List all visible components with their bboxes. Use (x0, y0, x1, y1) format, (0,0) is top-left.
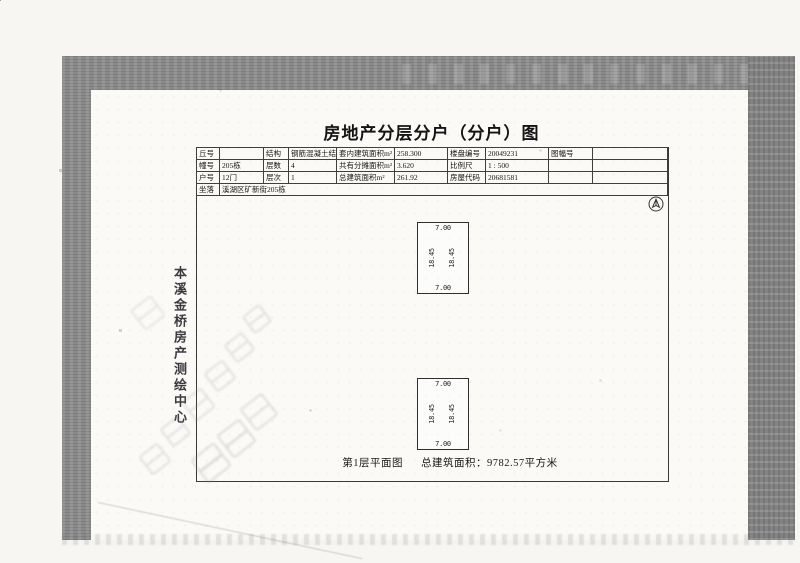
field-label: 共有分摊面积m² (337, 160, 395, 172)
plan-caption: 第1层平面图总建筑面积：9782.57平方米 (200, 455, 700, 470)
field-label: 总建筑面积m² (337, 172, 395, 184)
dimension-label: 7.00 (418, 224, 468, 232)
field-value: 溪湖区矿新街205栋 (220, 184, 668, 196)
scan-edge-streak (62, 534, 795, 545)
scan-specks (0, 0, 1, 1)
dimension-label: 7.00 (418, 284, 468, 292)
field-value: 4 (289, 160, 337, 172)
scan-shadow-right (748, 56, 795, 540)
field-value (593, 160, 668, 172)
dimension-label: 18.45 (448, 248, 456, 268)
field-label: 坐落 (197, 184, 220, 196)
field-value: 20681581 (486, 172, 549, 184)
plan-unit-outline: 7.00 7.00 18.45 18.45 (417, 222, 469, 294)
total-area-label: 总建筑面积：9782.57平方米 (421, 455, 558, 470)
field-label: 层次 (264, 172, 289, 184)
field-label: 比例尺 (448, 160, 486, 172)
dimension-label: 18.45 (428, 404, 436, 424)
scanned-floor-plan-document: 房地产分层分户（分户）图 丘号 结构 钢筋混凝土结构 套内建筑面积m² 258.… (0, 0, 800, 563)
dimension-label: 18.45 (448, 404, 456, 424)
plan-unit-outline: 7.00 7.00 18.45 18.45 (417, 378, 469, 450)
dimension-label: 7.00 (418, 380, 468, 388)
field-label: 结构 (264, 148, 289, 160)
field-label (549, 172, 593, 184)
field-label: 层数 (264, 160, 289, 172)
field-value: 12门 (220, 172, 264, 184)
field-value: 1 (289, 172, 337, 184)
north-arrow-icon (648, 196, 664, 212)
field-value (593, 148, 668, 160)
copy-watermark-noise (402, 64, 782, 84)
field-label: 套内建筑面积m² (337, 148, 395, 160)
field-label (549, 160, 593, 172)
scan-shadow-left (62, 56, 91, 540)
field-value (220, 148, 264, 160)
property-info-table: 丘号 结构 钢筋混凝土结构 套内建筑面积m² 258.300 楼盘编号 2004… (196, 147, 668, 196)
field-label: 户号 (197, 172, 220, 184)
field-value: 1 : 500 (486, 160, 549, 172)
field-value (593, 172, 668, 184)
table-row-location: 坐落 溪湖区矿新街205栋 (197, 184, 668, 196)
field-label: 楼盘编号 (448, 148, 486, 160)
floor-label: 第1层平面图 (342, 455, 403, 470)
field-label: 房屋代码 (448, 172, 486, 184)
table-row: 幢号 205栋 层数 4 共有分摊面积m² 3.620 比例尺 1 : 500 (197, 160, 668, 172)
field-value: 205栋 (220, 160, 264, 172)
field-value: 20049231 (486, 148, 549, 160)
field-label: 图幅号 (549, 148, 593, 160)
field-value: 258.300 (395, 148, 448, 160)
dimension-label: 7.00 (418, 440, 468, 448)
dimension-label: 18.45 (428, 248, 436, 268)
field-value: 261.92 (395, 172, 448, 184)
field-value: 3.620 (395, 160, 448, 172)
table-row: 丘号 结构 钢筋混凝土结构 套内建筑面积m² 258.300 楼盘编号 2004… (197, 148, 668, 160)
scan-shadow-top (62, 56, 795, 90)
field-label: 幢号 (197, 160, 220, 172)
table-row: 户号 12门 层次 1 总建筑面积m² 261.92 房屋代码 20681581 (197, 172, 668, 184)
field-label: 丘号 (197, 148, 220, 160)
page-title: 房地产分层分户（分户）图 (196, 119, 667, 144)
field-value: 钢筋混凝土结构 (289, 148, 337, 160)
